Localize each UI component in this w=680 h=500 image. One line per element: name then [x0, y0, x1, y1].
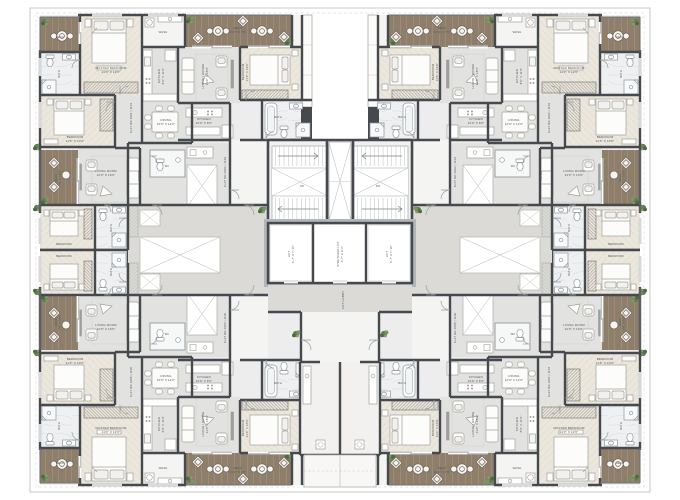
room-label: DECK: [56, 461, 64, 465]
room-label: LIVING / DINING11′0″ X 18′6″: [471, 411, 479, 437]
room-label: BEDROOM11′6″ X 10′0″: [66, 135, 85, 143]
room-label: BATH: [398, 115, 406, 119]
room-label: KITCHEN8′0″ X 11′0″: [515, 68, 523, 85]
flat-number-label: FLAT NO 1005 | 1105: [129, 366, 133, 397]
room-label: DECK: [616, 461, 624, 465]
room-label: WASH: [159, 466, 168, 470]
room-label: LIVING / DINING11′0″ X 18′6″: [201, 63, 209, 89]
room-label: BATH: [567, 224, 571, 232]
room-label: BEDROOM11′6″ X 10′0″: [596, 135, 615, 143]
room-label: WC: [511, 333, 516, 336]
room-label: WASH: [159, 30, 168, 34]
core-label: LIFT LOBBY: [341, 291, 345, 309]
core-label: UP: [300, 184, 304, 188]
room-label: FOYER: [137, 319, 141, 329]
room-label: BEDROOM11′6″ X 10′0″: [66, 357, 85, 365]
room-label: LIVING / DINING11′0″ X 18′6″: [201, 411, 209, 437]
core-label: DN: [376, 184, 380, 188]
flat-number-label: FLAT NO 1004 | 1104: [453, 156, 457, 187]
entrance-foyer: [301, 312, 379, 362]
room-label: BEDROOM: [608, 254, 624, 258]
flat-number-label: FLAT NO 1001 | 1101: [129, 102, 133, 133]
room-label: LIVING / DINING11′0″ X 18′6″: [471, 63, 479, 89]
corridor-left: [128, 205, 270, 295]
room-label: BEDROOM11′0″ X 10′0″: [241, 63, 249, 82]
flat-number-label: FLAT NO 1002 | 1102: [223, 156, 227, 187]
room-label: BATH: [57, 422, 61, 430]
room-label: LIVING ROOM12′0″ X 16′0″: [563, 323, 585, 331]
room-label: BATH: [398, 381, 406, 385]
room-label: DECK: [616, 35, 624, 39]
room-label: KITCHEN10′6″ X 8′0″: [196, 117, 213, 125]
room-label: BEDROOM11′0″ X 10′0″: [431, 63, 439, 82]
room-label: BEDROOM11′0″ X 10′0″: [241, 419, 249, 438]
room-label: BATH: [274, 115, 282, 119]
room-label: WASH: [513, 30, 522, 34]
corridor-right: [410, 205, 552, 295]
room-label: BEDROOM: [56, 254, 72, 258]
room-label: BATH: [274, 381, 282, 385]
room-label: KITCHEN8′0″ X 11′0″: [515, 416, 523, 433]
floor-plan-svg: DECKDECKDECKDECKMASTER BEDROOM11′0″ X 12…: [0, 0, 680, 500]
room-label: KITCHEN10′6″ X 8′0″: [196, 375, 213, 383]
floor-plan: DECKDECKDECKDECKMASTER BEDROOM11′0″ X 12…: [0, 0, 680, 500]
room-label: BATH: [567, 268, 571, 276]
room-label: BATH: [109, 268, 113, 276]
room-label: KITCHEN10′6″ X 8′0″: [468, 375, 485, 383]
room-label: KITCHEN8′0″ X 11′0″: [157, 416, 165, 433]
room-label: LIVING ROOM12′0″ X 16′0″: [95, 169, 117, 177]
room-label: DECK: [56, 35, 64, 39]
room-label: BEDROOM: [56, 242, 72, 246]
room-label: FOYER: [539, 171, 543, 181]
room-label: FOYER: [539, 319, 543, 329]
room-label: BATH: [619, 422, 623, 430]
room-label: BEDROOM: [608, 242, 624, 246]
room-label: KITCHEN10′6″ X 8′0″: [468, 117, 485, 125]
room-label: BATH: [109, 224, 113, 232]
flat-number-label: FLAT NO 1008 | 1108: [453, 312, 457, 343]
service-block: [300, 362, 380, 487]
room-label: BEDROOM11′6″ X 10′0″: [596, 357, 615, 365]
room-label: WASH: [513, 466, 522, 470]
room-label: LIVING ROOM12′0″ X 16′0″: [95, 323, 117, 331]
room-label: BATH: [57, 70, 61, 78]
room-label: BEDROOM11′0″ X 10′0″: [431, 419, 439, 438]
flat-number-label: FLAT NO 1006 | 1106: [223, 312, 227, 343]
flat-number-label: FLAT NO 1007 | 1107: [547, 366, 551, 397]
lift-lobby-floor: [268, 285, 412, 312]
room-label: FOYER: [137, 171, 141, 181]
room-label: WC: [165, 333, 170, 336]
room-label: WC: [511, 165, 516, 168]
room-label: WC: [165, 165, 170, 168]
room-label: BATH: [619, 70, 623, 78]
room-label: LIVING ROOM12′0″ X 16′0″: [563, 169, 585, 177]
room-label: KITCHEN8′0″ X 11′0″: [157, 68, 165, 85]
flat-number-label: FLAT NO 1003 | 1103: [547, 102, 551, 133]
